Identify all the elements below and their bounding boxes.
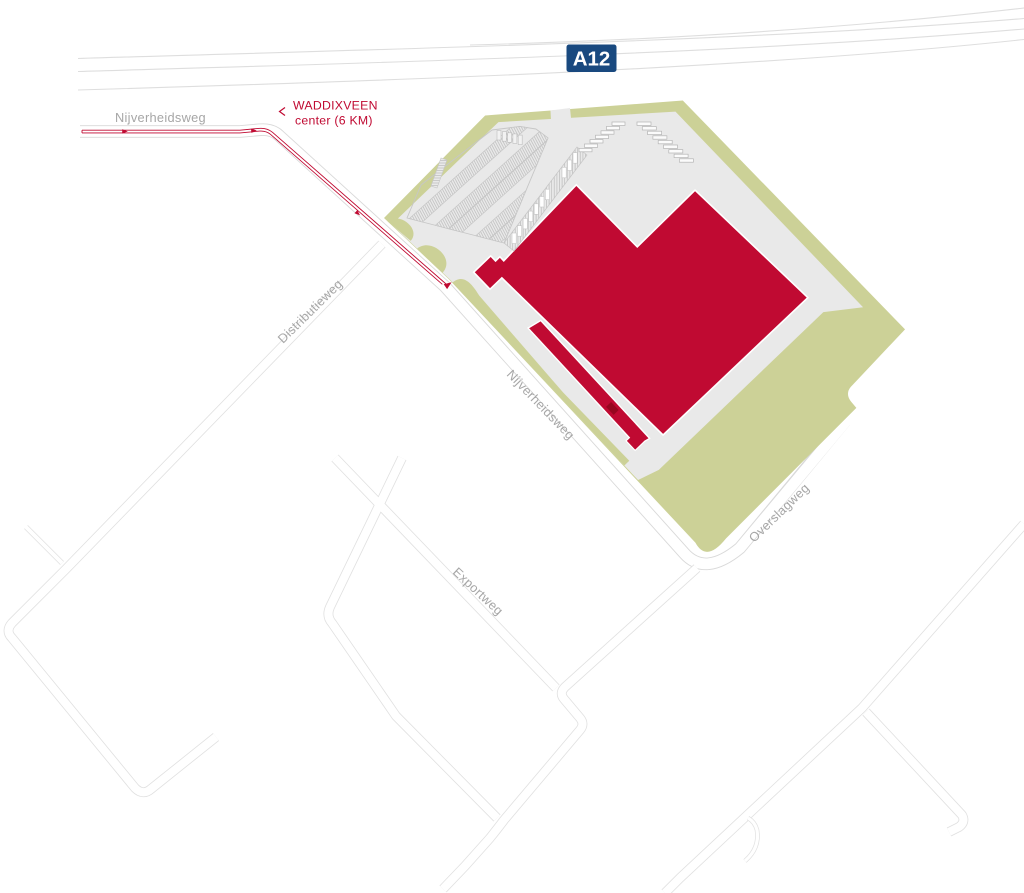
svg-text:center (6 KM): center (6 KM) [295,114,373,128]
svg-text:Nijverheidsweg: Nijverheidsweg [115,110,206,125]
svg-text:WADDIXVEEN: WADDIXVEEN [293,99,378,113]
svg-text:A12: A12 [573,48,611,71]
